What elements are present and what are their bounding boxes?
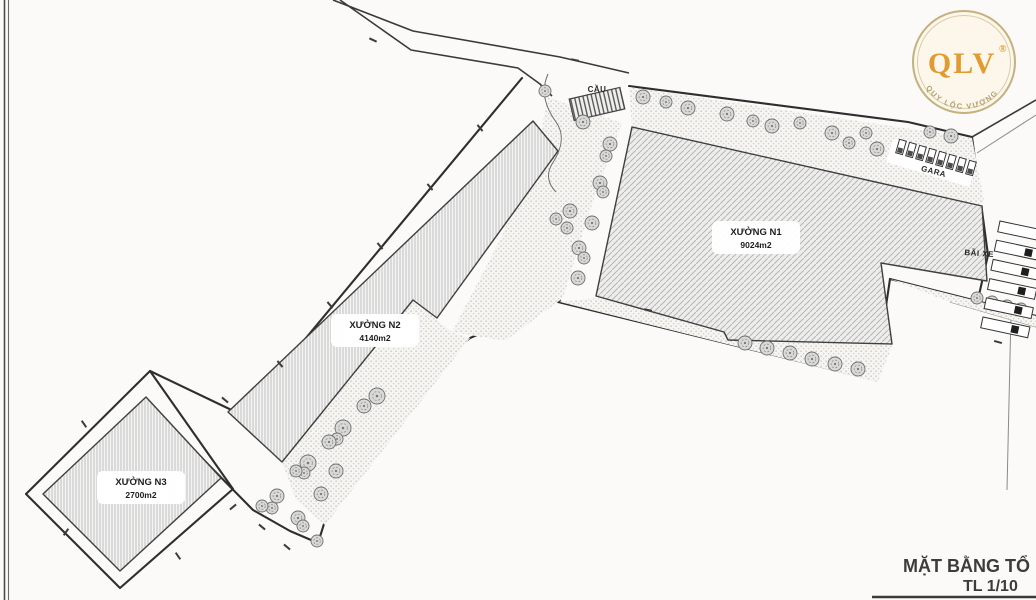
tree-icon	[805, 352, 819, 366]
tree-icon	[571, 271, 585, 285]
svg-text:XƯỞNG N2: XƯỞNG N2	[349, 319, 400, 331]
frame-border-left	[5, 0, 9, 600]
site-plan-drawing: CẦU GARA BÃI XE XƯỞNG N1 9024m2 XƯỞNG N2…	[0, 0, 1036, 600]
tree-icon	[660, 96, 672, 108]
drawing-title: MẶT BẰNG TỔ	[903, 555, 1030, 576]
building-n2-label: XƯỞNG N2 4140m2	[331, 314, 419, 347]
svg-text:9024m2: 9024m2	[740, 240, 771, 250]
tree-icon	[843, 137, 855, 149]
tree-icon	[561, 222, 573, 234]
building-n1-label: XƯỞNG N1 9024m2	[712, 221, 800, 254]
tree-icon	[738, 336, 752, 350]
tree-icon	[783, 346, 797, 360]
tree-icon	[636, 90, 650, 104]
tree-icon	[971, 292, 983, 304]
dimension-tick	[175, 552, 181, 560]
svg-text:XƯỞNG N1: XƯỞNG N1	[730, 226, 782, 238]
tree-icon	[322, 435, 336, 449]
tree-icon	[851, 362, 865, 376]
tree-icon	[550, 213, 562, 225]
dimension-tick	[221, 397, 228, 404]
tree-icon	[924, 126, 936, 138]
tree-icon	[563, 204, 577, 218]
parking-stall	[991, 259, 1036, 280]
title-block: MẶT BẰNG TỔ TL 1/10	[872, 555, 1036, 597]
tree-icon	[794, 117, 806, 129]
tree-icon	[760, 341, 774, 355]
site-plan-page: CẦU GARA BÃI XE XƯỞNG N1 9024m2 XƯỞNG N2…	[0, 0, 1036, 600]
tree-icon	[290, 465, 302, 477]
tree-icon	[720, 107, 734, 121]
tree-icon	[357, 399, 371, 413]
tree-icon	[270, 489, 284, 503]
tree-icon	[256, 500, 268, 512]
dimension-tick	[81, 420, 87, 428]
tree-icon	[585, 216, 599, 230]
dimension-tick	[283, 544, 290, 551]
svg-text:4140m2: 4140m2	[359, 333, 390, 343]
tree-icon	[597, 186, 609, 198]
tree-icon	[681, 101, 695, 115]
dimension-tick	[369, 37, 377, 42]
tree-icon	[765, 119, 779, 133]
tree-icon	[314, 487, 328, 501]
logo: QLV ® QUY LỘC VƯỢNG	[913, 11, 1015, 113]
drawing-scale: TL 1/10	[963, 578, 1018, 595]
tree-icon	[329, 464, 343, 478]
logo-text: QLV	[928, 47, 996, 80]
parking-stall	[998, 221, 1036, 242]
tree-icon	[297, 520, 309, 532]
tree-icon	[576, 115, 590, 129]
tree-icon	[578, 252, 590, 264]
tree-icon	[603, 137, 617, 151]
dimension-tick	[994, 340, 1002, 344]
label-cau: CẦU	[588, 84, 607, 94]
logo-registered-mark: ®	[999, 44, 1007, 55]
building-n3-label: XƯỞNG N3 2700m2	[97, 471, 185, 504]
tree-icon	[600, 150, 612, 162]
tree-icon	[828, 357, 842, 371]
tree-icon	[369, 388, 385, 404]
tree-icon	[944, 129, 958, 143]
tree-icon	[825, 126, 839, 140]
svg-text:XƯỞNG N3: XƯỞNG N3	[115, 476, 166, 488]
dimension-tick	[229, 504, 236, 511]
tree-icon	[747, 115, 759, 127]
tree-icon	[870, 142, 884, 156]
svg-text:2700m2: 2700m2	[125, 490, 156, 500]
tree-icon	[539, 85, 551, 97]
tree-icon	[860, 127, 872, 139]
dimension-tick	[258, 524, 265, 531]
parking-stall	[994, 240, 1036, 261]
tree-icon	[311, 535, 323, 547]
access-road	[333, 0, 629, 96]
